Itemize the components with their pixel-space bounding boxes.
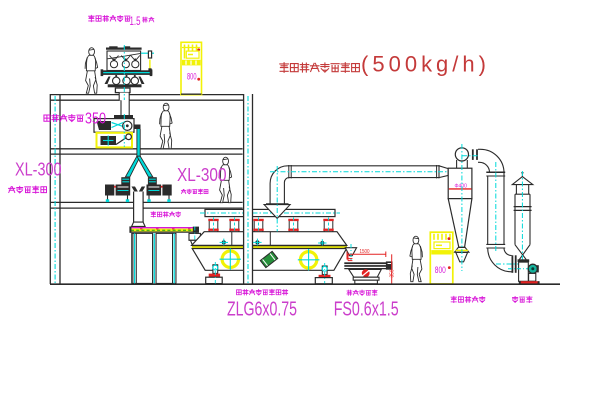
- svg-text:1.5: 1.5: [130, 14, 141, 28]
- svg-text:1500: 1500: [360, 249, 370, 255]
- svg-text:800: 800: [187, 71, 197, 81]
- svg-text:ZLG6x0.75: ZLG6x0.75: [227, 299, 297, 321]
- svg-text:350: 350: [85, 111, 106, 128]
- svg-text:XL-300: XL-300: [15, 160, 62, 180]
- svg-text:350: 350: [390, 269, 396, 277]
- svg-text:(500kg/h): (500kg/h): [361, 52, 486, 77]
- svg-text:FS0.6x1.5: FS0.6x1.5: [334, 299, 399, 321]
- svg-text:XL-300: XL-300: [177, 165, 227, 185]
- svg-text:800: 800: [435, 265, 446, 275]
